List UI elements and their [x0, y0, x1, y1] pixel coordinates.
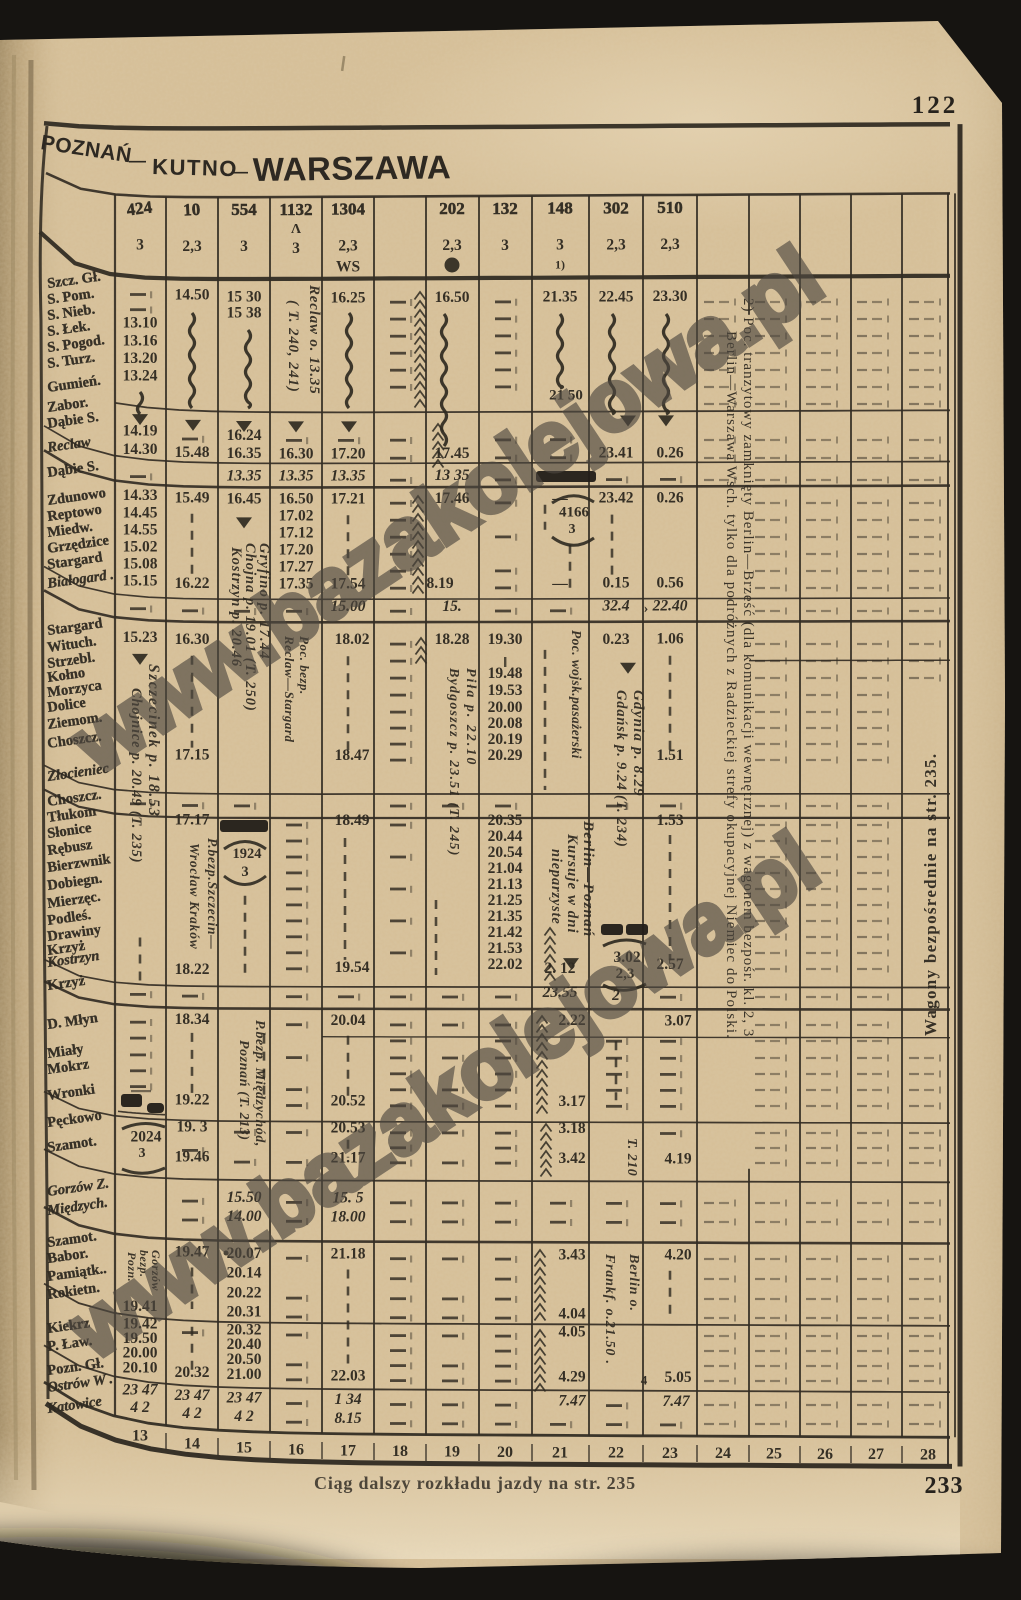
svg-text:14.45: 14.45: [123, 504, 158, 521]
svg-text:Wagony bezpośrednie na str. 23: Wagony bezpośrednie na str. 235.: [921, 753, 940, 1036]
svg-text:20.04: 20.04: [331, 1012, 366, 1029]
svg-text:17.21: 17.21: [331, 490, 366, 507]
svg-text:—: —: [231, 162, 248, 181]
svg-text:18: 18: [392, 1443, 408, 1460]
svg-text:14.33: 14.33: [123, 487, 158, 504]
svg-text:4 2: 4 2: [181, 1405, 202, 1422]
svg-text:18.22: 18.22: [175, 961, 210, 978]
svg-text:4.20: 4.20: [664, 1247, 691, 1264]
svg-text:18.47: 18.47: [335, 747, 370, 764]
svg-text:3: 3: [139, 1146, 146, 1161]
svg-text:0.26: 0.26: [656, 490, 683, 507]
svg-text:3: 3: [292, 240, 300, 257]
svg-text:Wrocław Kraków: Wrocław Kraków: [187, 843, 202, 950]
svg-text:18.28: 18.28: [435, 631, 470, 648]
svg-text:5.05: 5.05: [664, 1369, 691, 1386]
svg-text:19.22: 19.22: [175, 1092, 210, 1109]
svg-text:P.bezp.Szczecin—: P.bezp.Szczecin—: [205, 838, 220, 950]
svg-text:4 2: 4 2: [129, 1399, 150, 1416]
svg-text:Ciąg dalszy rozkładu jazdy na: Ciąg dalszy rozkładu jazdy na str. 235: [314, 1473, 636, 1493]
svg-text:3: 3: [556, 237, 564, 254]
svg-text:Poznań (T. 213): Poznań (T. 213): [236, 1040, 251, 1141]
svg-text:20.19: 20.19: [488, 731, 523, 748]
svg-text:14.55: 14.55: [123, 521, 158, 538]
svg-text:15.23: 15.23: [123, 629, 158, 646]
svg-text:Reclaw o. 13.35: Reclaw o. 13.35: [306, 284, 322, 395]
svg-text:16: 16: [288, 1442, 304, 1459]
svg-text:4.05: 4.05: [558, 1323, 585, 1340]
svg-text:4 2: 4 2: [233, 1408, 254, 1425]
svg-text:›: ›: [644, 602, 649, 617]
svg-text:21.13: 21.13: [488, 876, 523, 893]
svg-text:13.10: 13.10: [123, 315, 158, 332]
svg-text:21.35: 21.35: [488, 908, 523, 925]
svg-text:20.08: 20.08: [488, 715, 523, 732]
svg-text:21.42: 21.42: [488, 924, 523, 941]
svg-text:10: 10: [183, 200, 201, 220]
svg-text:0.26: 0.26: [656, 444, 683, 461]
svg-text:17.20: 17.20: [331, 445, 366, 462]
svg-text:14.50: 14.50: [175, 287, 210, 304]
svg-text:510: 510: [657, 198, 683, 217]
svg-text:22: 22: [608, 1445, 624, 1462]
svg-text:21.04: 21.04: [488, 860, 523, 877]
svg-text:15 38: 15 38: [227, 305, 262, 322]
svg-text:3: 3: [240, 238, 248, 255]
svg-text:1.06: 1.06: [656, 631, 683, 648]
svg-text:Frankf. o.21.50 .: Frankf. o.21.50 .: [602, 1253, 617, 1365]
svg-text:3.18: 3.18: [558, 1120, 585, 1137]
svg-text:16.50: 16.50: [435, 289, 470, 306]
svg-text:20.44: 20.44: [488, 828, 523, 845]
svg-text:28: 28: [920, 1446, 936, 1463]
svg-text:17.12: 17.12: [279, 524, 314, 541]
svg-text:7.47: 7.47: [558, 1392, 586, 1409]
svg-text:8.15: 8.15: [334, 1410, 361, 1427]
svg-text:13: 13: [132, 1428, 148, 1445]
svg-text:2,3: 2,3: [182, 238, 202, 255]
svg-text:554: 554: [231, 200, 257, 219]
svg-text:18.49: 18.49: [335, 812, 370, 829]
svg-text:P.bezp. Międzychód,: P.bezp. Międzychód,: [252, 1020, 267, 1147]
svg-text:19.54: 19.54: [335, 959, 370, 976]
svg-text:0.23: 0.23: [602, 631, 629, 648]
svg-text:4166: 4166: [559, 505, 590, 521]
svg-text:26: 26: [817, 1446, 833, 1463]
svg-text:19.30: 19.30: [488, 631, 523, 648]
svg-text:16.35: 16.35: [227, 445, 262, 462]
svg-text:4.04: 4.04: [558, 1305, 585, 1322]
svg-text:202: 202: [439, 199, 465, 218]
svg-text:1304: 1304: [331, 200, 366, 219]
svg-text:20.29: 20.29: [488, 747, 523, 764]
svg-text:Berlin—Poznań: Berlin—Poznań: [580, 820, 596, 937]
svg-text:13.24: 13.24: [123, 368, 158, 385]
svg-text:13.35: 13.35: [227, 467, 262, 484]
svg-text:13.35: 13.35: [279, 467, 314, 484]
svg-text:19. 3: 19. 3: [177, 1119, 208, 1136]
svg-text:23 47: 23 47: [174, 1387, 211, 1404]
svg-text:15.: 15.: [442, 598, 461, 615]
svg-text:22.02: 22.02: [488, 956, 523, 973]
svg-text:148: 148: [547, 199, 573, 218]
svg-text:3: 3: [241, 864, 248, 880]
svg-text:16.25: 16.25: [331, 289, 366, 306]
svg-text:3: 3: [136, 237, 144, 254]
svg-text:—: —: [129, 151, 146, 170]
svg-text:19.48: 19.48: [488, 665, 523, 682]
svg-text:302: 302: [603, 198, 629, 217]
svg-text:1.53: 1.53: [656, 812, 683, 829]
svg-text:23 47: 23 47: [226, 1389, 263, 1406]
svg-text:20.31: 20.31: [227, 1303, 262, 1320]
svg-text:2024: 2024: [131, 1129, 162, 1146]
svg-text:2,3: 2,3: [338, 238, 358, 255]
svg-text:22.45: 22.45: [599, 288, 634, 305]
svg-text:20: 20: [497, 1444, 513, 1461]
svg-text:Λ: Λ: [291, 222, 301, 237]
svg-text:14.19: 14.19: [123, 423, 158, 440]
svg-text:7.47: 7.47: [662, 1393, 690, 1410]
svg-text:22.03: 22.03: [331, 1367, 366, 1384]
svg-text:15.49: 15.49: [175, 490, 210, 507]
svg-text:3: 3: [501, 237, 509, 254]
svg-text:20.54: 20.54: [488, 844, 523, 861]
svg-text:1924: 1924: [233, 846, 262, 862]
svg-text:Poc. wojsk.pasażerski: Poc. wojsk.pasażerski: [569, 630, 584, 759]
svg-text:17: 17: [340, 1443, 356, 1460]
svg-text:21.18: 21.18: [331, 1246, 366, 1263]
svg-text:20.35: 20.35: [488, 812, 523, 829]
svg-text:13.35: 13.35: [331, 467, 366, 484]
svg-text:Berlin o.: Berlin o.: [626, 1253, 641, 1312]
svg-text:1 34: 1 34: [334, 1391, 361, 1408]
svg-text:WS: WS: [336, 259, 360, 276]
svg-text:27: 27: [868, 1446, 884, 1463]
svg-text:KUTNO: KUTNO: [152, 154, 238, 181]
svg-text:( T. 240, 241): ( T. 240, 241): [285, 300, 301, 393]
svg-text:19: 19: [444, 1444, 460, 1461]
svg-text:WARSZAWA: WARSZAWA: [253, 148, 452, 188]
svg-text:Gdynia p. 8.29: Gdynia p. 8.29: [630, 690, 646, 797]
svg-text:17.15: 17.15: [175, 747, 210, 764]
svg-text:21: 21: [552, 1444, 568, 1461]
svg-text:2,3: 2,3: [606, 236, 626, 253]
svg-text:25: 25: [766, 1446, 782, 1463]
svg-text:1132: 1132: [279, 200, 312, 219]
svg-text:—: —: [551, 575, 568, 592]
svg-text:16.24: 16.24: [227, 427, 262, 444]
svg-text:15.02: 15.02: [123, 539, 158, 556]
svg-text:3.43: 3.43: [558, 1246, 585, 1263]
svg-text:18.34: 18.34: [175, 1011, 210, 1028]
svg-text:16.22: 16.22: [175, 575, 210, 592]
svg-text:Kursuje w dni: Kursuje w dni: [564, 833, 580, 934]
svg-text:17.02: 17.02: [279, 507, 314, 524]
svg-text:3.17: 3.17: [558, 1093, 585, 1110]
svg-text:Piła p. 22.10: Piła p. 22.10: [463, 668, 478, 766]
svg-text:23 47: 23 47: [122, 1382, 159, 1399]
svg-text:21.25: 21.25: [488, 892, 523, 909]
svg-text:2,3: 2,3: [442, 237, 462, 254]
svg-text:16.45: 16.45: [227, 490, 262, 507]
svg-text:Bydgoszcz p. 23.51 (T. 245): Bydgoszcz p. 23.51 (T. 245): [446, 667, 461, 857]
svg-text:24: 24: [715, 1445, 731, 1462]
svg-text:nieparzyste: nieparzyste: [548, 849, 564, 925]
svg-text:21.53: 21.53: [488, 940, 523, 957]
svg-text:21.35: 21.35: [543, 289, 578, 306]
svg-text:22.40: 22.40: [652, 598, 688, 615]
svg-text:15.48: 15.48: [175, 444, 210, 461]
svg-text:3.07: 3.07: [664, 1012, 691, 1029]
svg-text:16.30: 16.30: [279, 445, 314, 462]
svg-text:1): 1): [555, 258, 565, 272]
svg-text:424: 424: [126, 197, 154, 219]
svg-text:15: 15: [236, 1440, 252, 1457]
svg-text:21.00: 21.00: [227, 1366, 262, 1383]
svg-text:14.30: 14.30: [123, 441, 158, 458]
svg-text:15.15: 15.15: [123, 573, 158, 590]
svg-text:32.4: 32.4: [601, 598, 629, 615]
svg-text:15 30: 15 30: [227, 288, 262, 305]
svg-text:14: 14: [184, 1436, 200, 1453]
svg-text:13.16: 13.16: [123, 332, 158, 349]
svg-text:19.53: 19.53: [488, 682, 523, 699]
svg-text:T. 210: T. 210: [624, 1138, 639, 1176]
svg-text:3: 3: [569, 522, 576, 537]
svg-text:4.19: 4.19: [664, 1151, 691, 1168]
svg-text:3.42: 3.42: [558, 1150, 585, 1167]
svg-text:23.42: 23.42: [599, 490, 634, 507]
svg-text:0.15: 0.15: [602, 575, 629, 592]
svg-text:122: 122: [912, 92, 959, 119]
svg-text:0.56: 0.56: [656, 575, 683, 592]
svg-text:4.29: 4.29: [558, 1368, 585, 1385]
svg-text:13.20: 13.20: [123, 350, 158, 367]
svg-text:233: 233: [925, 1473, 964, 1499]
svg-text:2,3: 2,3: [660, 236, 680, 253]
svg-text:17.17: 17.17: [175, 812, 210, 829]
svg-text:Gdańsk p. 9.24 (T. 234): Gdańsk p. 9.24 (T. 234): [613, 690, 629, 848]
svg-text:23: 23: [662, 1445, 678, 1462]
svg-text:15.08: 15.08: [123, 556, 158, 573]
svg-text:20.00: 20.00: [488, 699, 523, 716]
svg-text:16.50: 16.50: [279, 490, 314, 507]
svg-text:4: 4: [641, 1373, 648, 1388]
svg-text:132: 132: [492, 199, 518, 218]
